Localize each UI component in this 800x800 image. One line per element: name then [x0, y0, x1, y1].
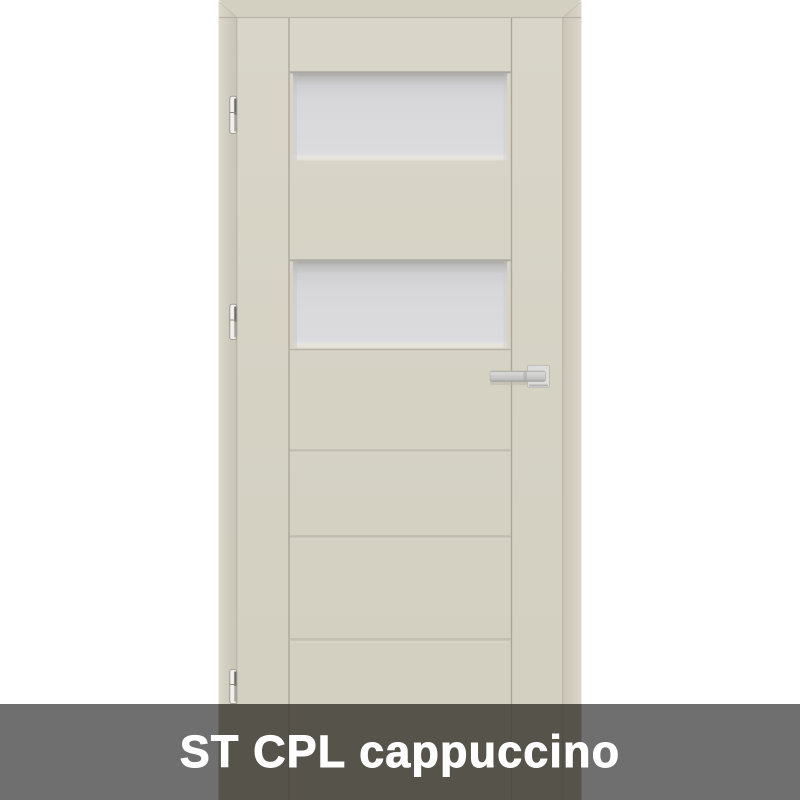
svg-text:ST CPL cappuccino: ST CPL cappuccino [180, 726, 620, 777]
